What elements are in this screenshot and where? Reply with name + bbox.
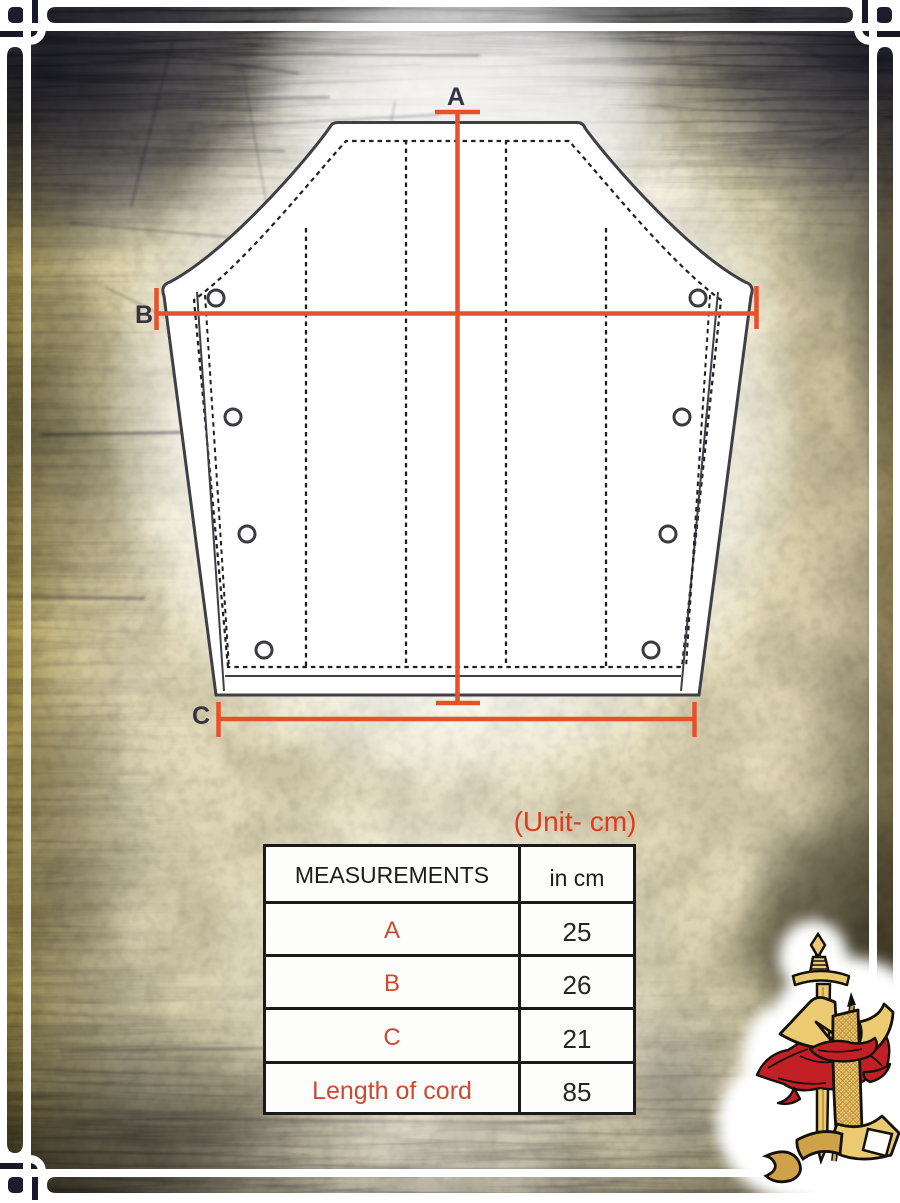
svg-text:C: C	[192, 702, 210, 730]
svg-text:B: B	[135, 301, 153, 329]
svg-text:A: A	[447, 83, 465, 111]
